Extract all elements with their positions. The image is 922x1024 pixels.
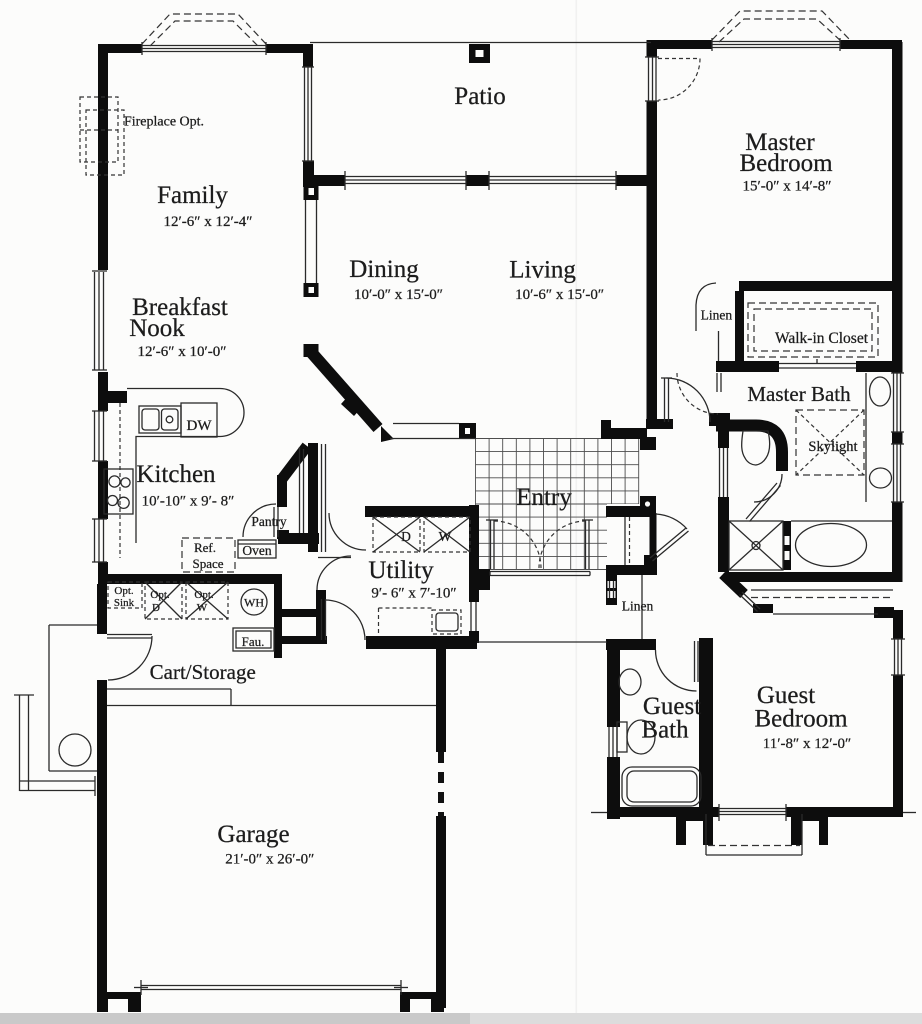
svg-text:Opt.: Opt. <box>150 589 170 601</box>
svg-text:WH: WH <box>244 596 264 610</box>
svg-text:Cart/Storage: Cart/Storage <box>150 660 256 684</box>
svg-text:Living: Living <box>509 257 576 284</box>
svg-text:Linen: Linen <box>701 308 733 323</box>
svg-text:DW: DW <box>187 418 213 434</box>
svg-text:Opt.: Opt. <box>194 589 214 601</box>
svg-text:Sink: Sink <box>114 597 135 609</box>
svg-text:Patio: Patio <box>454 83 505 110</box>
svg-text:12′-6″ x 10′-0″: 12′-6″ x 10′-0″ <box>137 344 226 360</box>
svg-text:12′-6″ x 12′-4″: 12′-6″ x 12′-4″ <box>163 214 252 230</box>
svg-text:Linen: Linen <box>622 599 654 614</box>
svg-text:Entry: Entry <box>516 484 572 511</box>
svg-text:D: D <box>152 602 160 614</box>
svg-text:9′- 6″ x 7′-10″: 9′- 6″ x 7′-10″ <box>371 586 456 602</box>
svg-text:Fireplace Opt.: Fireplace Opt. <box>124 115 204 130</box>
svg-text:Fau.: Fau. <box>242 634 265 649</box>
svg-text:10′-0″ x 15′-0″: 10′-0″ x 15′-0″ <box>354 287 443 303</box>
svg-text:Family: Family <box>157 182 228 209</box>
svg-text:10′-10″ x 9′- 8″: 10′-10″ x 9′- 8″ <box>142 494 235 510</box>
svg-text:Bath: Bath <box>641 717 689 744</box>
svg-text:Dining: Dining <box>349 256 419 283</box>
svg-text:Skylight: Skylight <box>808 439 857 455</box>
svg-text:Master Bath: Master Bath <box>747 382 851 406</box>
svg-text:Bedroom: Bedroom <box>754 706 848 733</box>
svg-text:Garage: Garage <box>217 821 289 848</box>
svg-text:D: D <box>401 529 411 544</box>
svg-text:15′-0″ x 14′-8″: 15′-0″ x 14′-8″ <box>742 179 831 195</box>
svg-text:21′-0″ x 26′-0″: 21′-0″ x 26′-0″ <box>225 852 314 868</box>
svg-text:Oven: Oven <box>242 543 271 558</box>
svg-text:Ref.: Ref. <box>194 540 216 555</box>
svg-text:Space: Space <box>192 556 223 571</box>
svg-text:Opt.: Opt. <box>114 585 134 597</box>
svg-text:W: W <box>439 529 452 544</box>
svg-text:Kitchen: Kitchen <box>136 461 216 488</box>
svg-text:Bedroom: Bedroom <box>739 150 833 177</box>
svg-text:W: W <box>197 602 208 614</box>
svg-text:Utility: Utility <box>368 557 434 584</box>
svg-text:Pantry: Pantry <box>251 514 286 529</box>
svg-text:Walk-in Closet: Walk-in Closet <box>775 330 869 347</box>
svg-text:11′-8″ x 12′-0″: 11′-8″ x 12′-0″ <box>763 736 852 752</box>
svg-text:10′-6″ x 15′-0″: 10′-6″ x 15′-0″ <box>515 287 604 303</box>
svg-text:Nook: Nook <box>129 315 185 342</box>
